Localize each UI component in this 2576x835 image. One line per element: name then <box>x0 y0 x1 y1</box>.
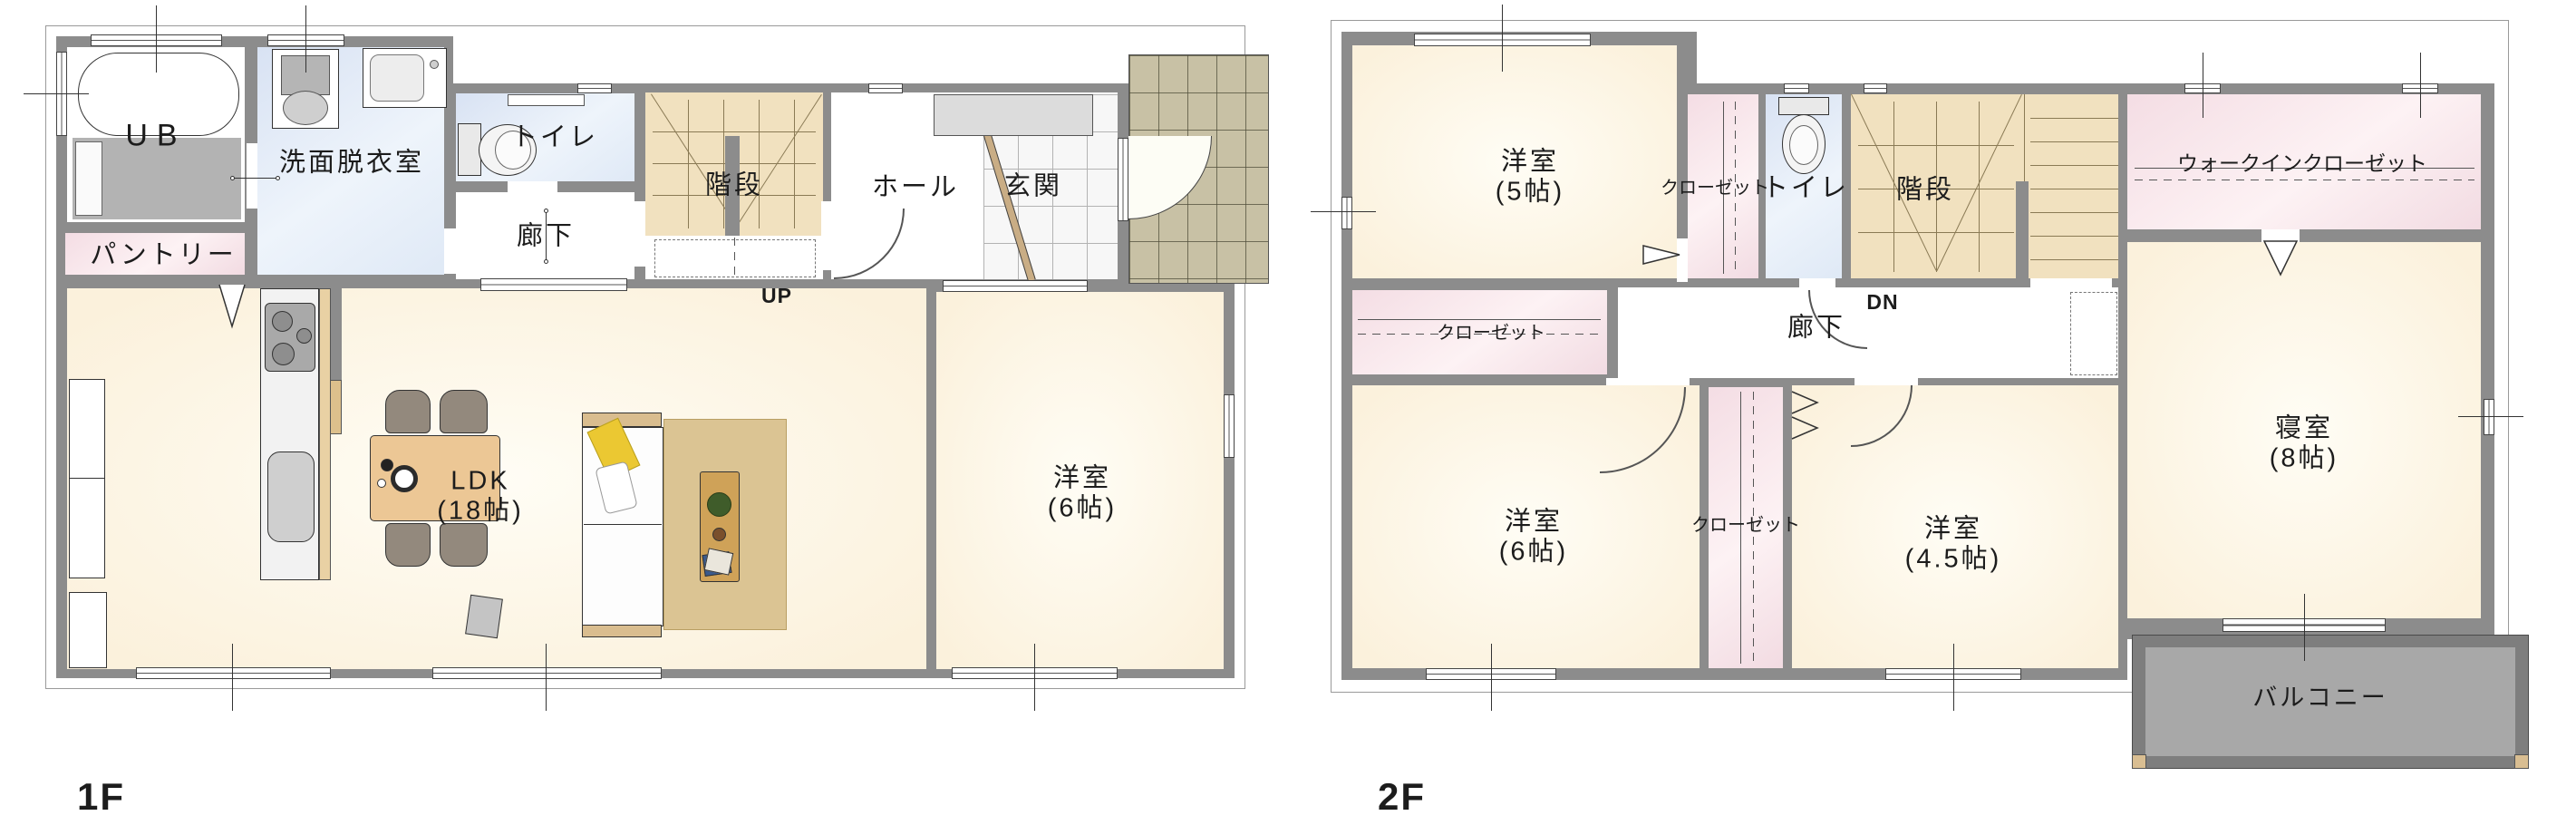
closet-top-label: クローゼット <box>1661 179 1769 199</box>
stairs2-tread <box>2030 212 2118 213</box>
dim-tick <box>1311 211 1376 212</box>
closet-left-label: クローゼット <box>1437 324 1545 345</box>
room-label-toilet2: トイレ <box>1762 173 1849 203</box>
toilet2-seat <box>1789 125 1818 165</box>
dim-tick <box>2203 53 2203 118</box>
dim-tick <box>2458 416 2523 417</box>
dim-tick <box>1491 644 1492 711</box>
door-opening-45j <box>1855 378 1918 385</box>
stairs2-center-wall <box>2016 181 2029 278</box>
balcony-post <box>2514 754 2529 769</box>
closet-left-rod <box>1358 319 1601 320</box>
stairs2-tread <box>2030 259 2118 260</box>
stairs2-tread <box>2030 118 2118 119</box>
stairs2-grid-line <box>1858 232 2014 233</box>
master-size: (8帖) <box>2270 444 2339 474</box>
dim-tick <box>1502 5 1503 72</box>
stairwell-void-dashed <box>2070 292 2117 375</box>
stairs2-grid-line <box>1979 102 1980 272</box>
dim-tick <box>2304 594 2305 661</box>
room-label-stairs2: 階段 <box>1896 175 1954 205</box>
stairs2-divider <box>2024 94 2025 181</box>
room-label-wic: ウォークインクローゼット <box>2177 151 2427 175</box>
closet-mid-label: クローゼット <box>1691 516 1800 537</box>
door-leaf-5j-icon <box>1642 241 1680 268</box>
dim-tick <box>2420 53 2421 118</box>
floor-plan-2f: 洋室 (5帖) クローゼット トイレ 階段 ウォークインクローゼット クローゼッ… <box>0 0 2576 835</box>
room-label-5j: 洋室 (5帖) <box>1496 148 1564 209</box>
floor-plan-canvas: UB 洗面脱衣室 トイレ 階段 ホール 玄関 廊下 パントリー UP LDK (… <box>0 0 2576 835</box>
dim-tick <box>1953 644 1954 711</box>
label-dn: DN <box>1866 290 1898 314</box>
room5-name: 洋室 <box>1496 148 1564 178</box>
window-stairs2-top <box>1864 83 1887 93</box>
room-label-balcony: バルコニー <box>2252 684 2387 712</box>
room-label-master: 寝室 (8帖) <box>2270 414 2339 475</box>
stairs2-tread <box>2030 165 2118 166</box>
room6-2f-name: 洋室 <box>1499 508 1568 538</box>
master-name: 寝室 <box>2270 414 2339 444</box>
room-label-6j-2f: 洋室 (6帖) <box>1499 508 1568 568</box>
door-opening-toilet2 <box>1799 278 1835 287</box>
window-5j-left <box>1341 197 1352 229</box>
balcony-post <box>2132 754 2146 769</box>
room-label-45j: 洋室 (4.5帖) <box>1905 515 2002 576</box>
door-leaf-master-icon <box>2262 240 2299 277</box>
floor-label-2f: 2F <box>1378 775 1426 819</box>
stairs2-tread <box>2030 236 2118 237</box>
stairs2-tread <box>2030 189 2118 189</box>
stairs2-grid-line <box>1858 145 2014 146</box>
toilet2-tank <box>1778 97 1829 115</box>
door-opening-stairs2 <box>2030 278 2112 287</box>
wic-rod-dash <box>2135 180 2474 180</box>
room45-size: (4.5帖) <box>1905 545 2002 575</box>
room5-size: (5帖) <box>1496 178 1564 208</box>
stairs2-grid-line <box>1893 102 1894 272</box>
room45-name: 洋室 <box>1905 515 2002 545</box>
bifold-closet-door-icon <box>1790 390 1821 442</box>
door-opening-6j-2f <box>1606 378 1690 385</box>
window-toilet2-top <box>1784 83 1809 93</box>
stairs2-tread <box>2030 141 2118 142</box>
room-stairs2-floor <box>1851 94 2118 278</box>
room-label-corridor2: 廊下 <box>1787 313 1845 343</box>
room6-2f-size: (6帖) <box>1499 538 1568 568</box>
window-master-right <box>2484 399 2494 435</box>
